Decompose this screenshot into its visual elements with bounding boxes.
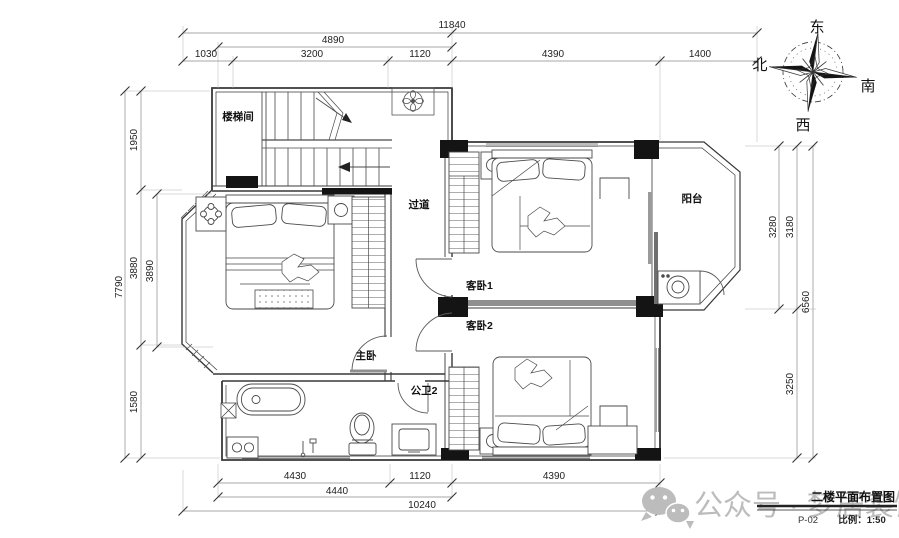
room-label-master-bedroom: 主卧 bbox=[356, 349, 377, 362]
dim-left-seg3: 1580 bbox=[129, 390, 140, 413]
dim-left-inner: 3890 bbox=[145, 259, 156, 282]
dim-bottom-seg2: 1120 bbox=[409, 471, 431, 482]
compass-south-label: 南 bbox=[860, 78, 875, 95]
dim-right-seg2: 3250 bbox=[785, 372, 796, 395]
room-label-stairwell: 楼梯间 bbox=[222, 110, 254, 123]
dim-right-outer: 3280 bbox=[768, 215, 779, 238]
compass-west-label: 西 bbox=[795, 117, 810, 134]
bedroom-divider-wall bbox=[467, 300, 637, 306]
drawing-title: 二楼平面布置图 bbox=[811, 489, 895, 504]
dim-left-seg1: 1950 bbox=[129, 128, 140, 151]
dim-top-seg1: 1030 bbox=[195, 49, 218, 60]
room-label-balcony: 阳台 bbox=[682, 192, 703, 205]
compass-north-label: 北 bbox=[752, 57, 767, 74]
washing-machine bbox=[658, 271, 700, 304]
dim-right-total: 6560 bbox=[801, 290, 812, 313]
guest1-bed bbox=[481, 150, 629, 252]
dim-top-seg3: 1120 bbox=[409, 49, 431, 60]
dim-bottom-seg3: 4390 bbox=[543, 471, 566, 482]
duct-shaft bbox=[221, 403, 236, 418]
floor-plan-page: 楼梯间 过道 阳台 客卧1 客卧2 主卧 公卫2 11840 4890 bbox=[0, 0, 899, 538]
dim-top-seg5: 1400 bbox=[689, 49, 712, 60]
scale-label: 比例：1:50 bbox=[838, 514, 886, 526]
guest2-wardrobe bbox=[449, 367, 479, 450]
dim-left-seg2: 3880 bbox=[129, 256, 140, 279]
master-wardrobe bbox=[352, 197, 385, 308]
dim-bottom-seg1: 4430 bbox=[284, 471, 307, 482]
staircase bbox=[262, 92, 392, 186]
room-label-bathroom-2: 公卫2 bbox=[411, 385, 438, 397]
room-label-corridor: 过道 bbox=[409, 198, 430, 211]
stair-direction-arrow-2 bbox=[342, 113, 352, 123]
compass-east-label: 东 bbox=[809, 19, 824, 36]
bathtub bbox=[237, 384, 305, 415]
shower-fittings bbox=[301, 439, 316, 457]
guest2-bed bbox=[480, 357, 637, 455]
dim-top-seg4: 4390 bbox=[542, 49, 565, 60]
balcony-sliding-door bbox=[648, 192, 658, 304]
dim-bottom-total: 10240 bbox=[408, 500, 436, 511]
sheet-number: P-02 bbox=[798, 515, 818, 526]
dim-left-total: 7790 bbox=[114, 275, 125, 298]
guest1-wardrobe bbox=[449, 152, 479, 253]
wechat-icon bbox=[641, 487, 694, 529]
bed-end-bench bbox=[255, 290, 313, 308]
dim-bottom-subtotal: 4440 bbox=[326, 486, 349, 497]
dim-right-seg1: 3180 bbox=[785, 215, 796, 238]
bathroom-sink bbox=[227, 437, 258, 458]
floor-plan-drawing: 楼梯间 过道 阳台 客卧1 客卧2 主卧 公卫2 11840 4890 bbox=[0, 0, 899, 538]
dim-top-total: 11840 bbox=[438, 20, 466, 31]
toilet bbox=[349, 413, 376, 455]
room-label-guest-bedroom-1: 客卧1 bbox=[465, 279, 493, 292]
vanity-sink bbox=[392, 424, 436, 455]
dim-top-subtotal: 4890 bbox=[322, 35, 345, 46]
compass-rose: 东 北 南 西 bbox=[752, 0, 875, 134]
room-label-guest-bedroom-2: 客卧2 bbox=[465, 319, 493, 332]
dim-top-seg2: 3200 bbox=[301, 49, 324, 60]
